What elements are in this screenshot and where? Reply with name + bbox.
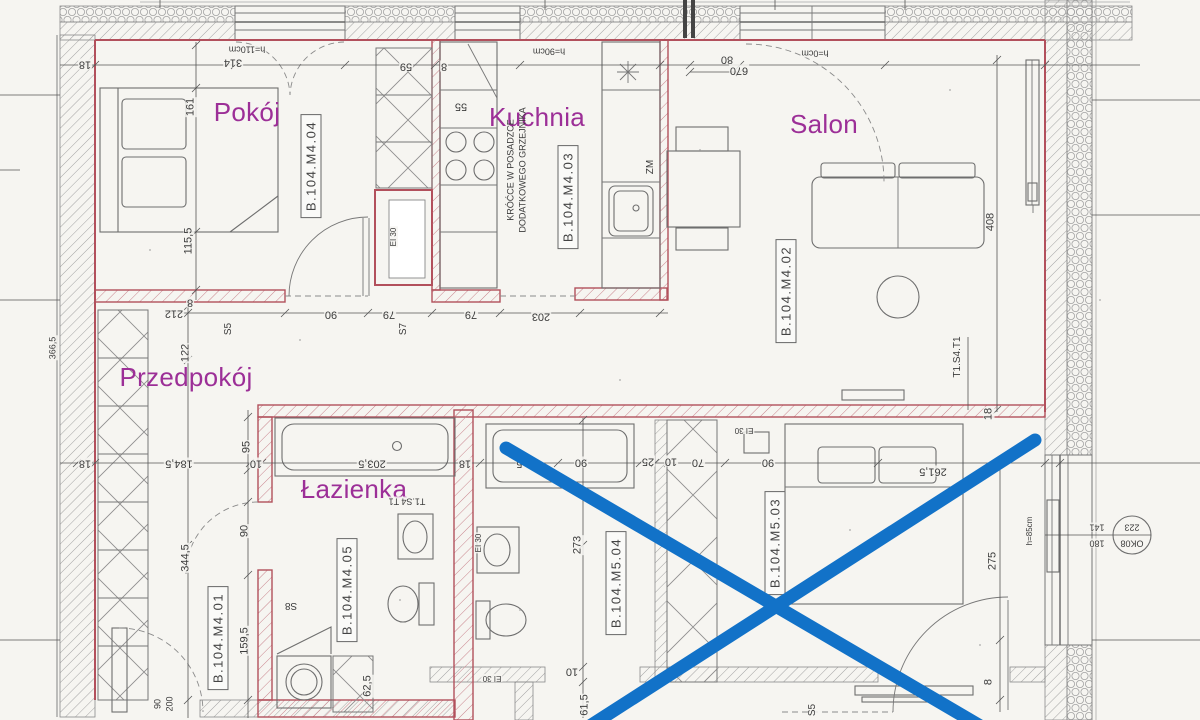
interior-walls [95,40,1045,720]
kitchen-counter-left [440,42,497,288]
bathroom-left-wall-b [258,570,272,700]
balcony-door-salon [740,6,885,40]
kitchen-bottom-wall-b [575,288,667,300]
cabinet-column [667,420,717,682]
sofa-back [899,163,975,178]
column-marker-a [683,0,687,38]
stove-burner [474,160,494,180]
chair [676,127,728,151]
toilet-tank-m504 [476,601,490,639]
top-wall-hatch [60,22,1132,40]
middle-band-wall [258,405,1045,417]
nightstand [744,432,769,453]
tub-faucet [393,442,402,451]
wardrobe-corridor [98,310,148,700]
toilet-tank [419,583,434,625]
bathtub [275,418,455,476]
pillow [122,99,186,149]
toilet-bowl-m504 [486,604,526,636]
pillow [879,447,936,483]
bottom-stub [515,682,533,720]
wardrobe-pokoj [376,48,432,188]
scan-speckles [149,89,1101,646]
furniture-kuchnia [440,42,660,288]
pokoj-bottom-wall [95,290,285,302]
window-kuchnia [455,6,520,40]
furniture-m504 [476,424,634,639]
furniture-przedpokoj [98,310,203,712]
star-symbol [617,61,639,83]
unit-boundary-wall [454,410,473,720]
furniture-pokoj [100,42,432,296]
toilet-bowl [388,586,418,622]
floor-plan-scan: PokójB.104.M4.04KuchniaB.104.M4.03SalonB… [0,0,1200,720]
stove-burner [446,132,466,152]
sideboard [855,686,973,695]
kitchen-left-wall [432,40,440,290]
bath-cabinet [333,656,373,712]
door-arc-pokoj [289,217,368,296]
bath-door-arc [186,502,258,574]
stove-burner [446,160,466,180]
top-wall-insulation [60,6,1132,22]
kitchen-counter-right [602,42,660,288]
bed-pokoj [100,88,278,232]
window-m503 [1045,455,1092,645]
bottom-band-c [1010,667,1045,682]
faucet [633,205,639,211]
floor-plan-drawing [0,0,1200,720]
coffee-table [877,276,919,318]
outer-walls [57,0,1132,720]
dining-table [667,151,740,227]
bottom-band-a [430,667,545,682]
pillow [818,447,875,483]
window-pokoj [235,6,345,40]
left-wall [60,35,95,717]
shelf [277,627,331,654]
dimension-lines [0,0,1200,718]
furniture-salon [667,44,1039,410]
furniture-lazienka [186,418,455,712]
pillow [122,157,186,207]
chair [676,228,728,250]
kitchen-bottom-wall-a [432,290,500,302]
column-marker-b [691,0,695,38]
stove-burner [474,132,494,152]
bathtub-m504 [486,424,634,488]
tv-bench [842,390,904,400]
